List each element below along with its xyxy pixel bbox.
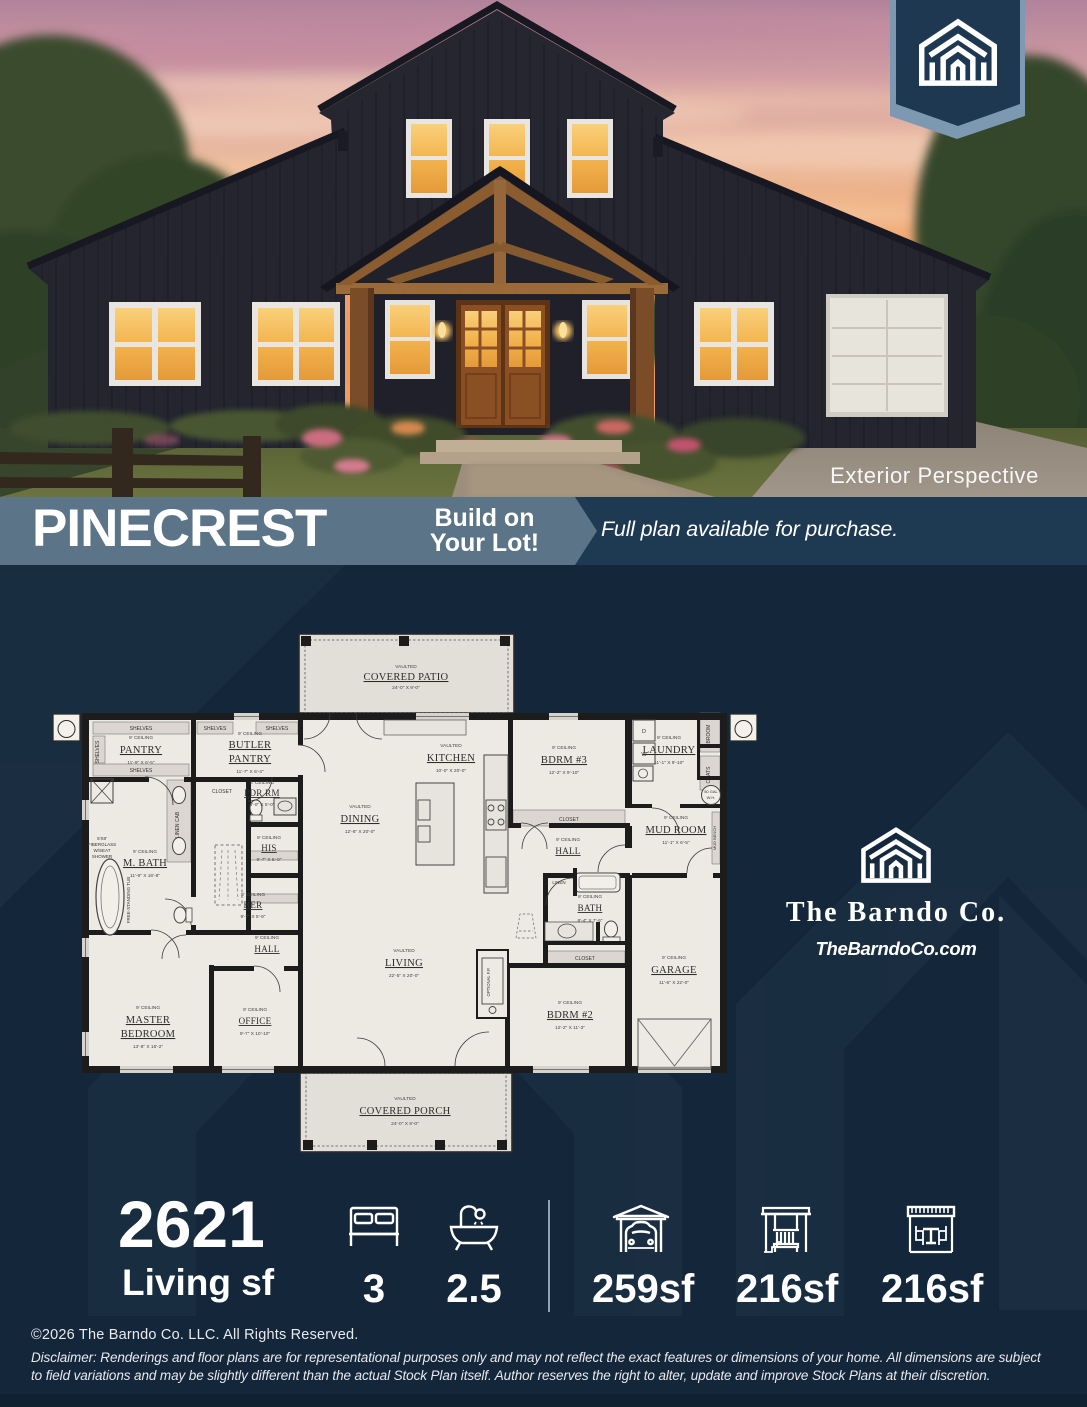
svg-text:COVERED PORCH: COVERED PORCH [359,1106,450,1117]
svg-text:HALL: HALL [555,846,580,856]
svg-text:HER: HER [244,900,263,910]
svg-text:11'-9" X 16'-8": 11'-9" X 16'-8" [130,873,160,879]
svg-text:VAULTED: VAULTED [394,1096,416,1102]
svg-text:6' CEILING: 6' CEILING [250,780,274,786]
svg-text:SHELVES: SHELVES [95,740,101,763]
svg-text:FIBERGLASS: FIBERGLASS [88,842,116,847]
svg-text:VAULTED: VAULTED [440,743,462,749]
svg-text:W.H.: W.H. [707,795,716,800]
svg-text:OFFICE: OFFICE [239,1016,272,1026]
svg-text:GARAGE: GARAGE [651,965,697,976]
svg-text:BDRM #2: BDRM #2 [547,1010,593,1021]
svg-text:MUD BENCH: MUD BENCH [712,826,717,850]
svg-text:9' CEILING: 9' CEILING [241,892,265,898]
svg-text:11'-1" X 6'-5": 11'-1" X 6'-5" [662,840,690,846]
svg-text:11'-7" X 6'-4": 11'-7" X 6'-4" [236,769,264,775]
svg-text:6'-0" X 5'-0": 6'-0" X 5'-0" [250,802,275,808]
svg-text:PANTRY: PANTRY [120,745,162,756]
svg-text:D: D [642,729,646,735]
svg-text:9'-7" X 5'-0": 9'-7" X 5'-0" [257,857,282,863]
svg-text:9' CEILING: 9' CEILING [662,955,686,961]
svg-text:12'-6" X 20'-0": 12'-6" X 20'-0" [345,829,376,835]
svg-text:8'-4" X 7'-6": 8'-4" X 7'-6" [578,918,603,924]
svg-text:9' CEILING: 9' CEILING [133,849,157,855]
svg-text:9' CEILING: 9' CEILING [552,745,576,751]
svg-text:9' CEILING: 9' CEILING [136,1005,160,1011]
svg-text:VAULTED: VAULTED [395,664,417,670]
svg-text:24'-0" X 9'-0": 24'-0" X 9'-0" [392,685,420,691]
svg-text:11'-6" X 22'-0": 11'-6" X 22'-0" [659,980,689,986]
svg-text:LAUNDRY: LAUNDRY [643,745,696,756]
svg-text:HALL: HALL [254,944,279,954]
svg-text:MUD ROOM: MUD ROOM [645,825,706,836]
svg-text:PDR RM: PDR RM [244,788,280,798]
svg-text:SHELVES: SHELVES [130,726,153,732]
svg-text:CLOSET: CLOSET [559,817,579,823]
svg-text:M. BATH: M. BATH [123,858,167,869]
svg-text:9' CEILING: 9' CEILING [664,815,688,821]
svg-text:PANTRY: PANTRY [229,754,271,765]
svg-text:LINEN CAB: LINEN CAB [175,811,181,838]
svg-text:VAULTED: VAULTED [349,804,371,810]
svg-text:22'-5" X 20'-0": 22'-5" X 20'-0" [389,973,420,979]
svg-text:LIVING: LIVING [385,958,423,969]
svg-text:MASTER: MASTER [126,1015,170,1026]
svg-text:12'-2" X 9'-10": 12'-2" X 9'-10" [549,770,580,776]
svg-text:9' CEILING: 9' CEILING [238,731,262,737]
svg-text:OPTIONAL F.P.: OPTIONAL F.P. [486,968,491,997]
svg-text:COATS: COATS [706,766,712,784]
svg-text:SHELVES: SHELVES [204,726,227,732]
svg-text:11'-1" X 9'-10": 11'-1" X 9'-10" [654,760,684,766]
svg-text:Exterior Perspective: Exterior Perspective [830,463,1039,488]
svg-text:9' CEILING: 9' CEILING [657,735,681,741]
svg-text:BEDROOM: BEDROOM [121,1029,176,1040]
svg-text:SHOWER: SHOWER [92,854,113,859]
svg-text:9' CEILING: 9' CEILING [257,835,281,841]
svg-text:W/SEAT: W/SEAT [94,848,111,853]
svg-text:9'-7" X 10'-10": 9'-7" X 10'-10" [240,1031,271,1037]
svg-text:9' CEILING: 9' CEILING [243,1007,267,1013]
svg-text:12'-2" X 11'-3": 12'-2" X 11'-3" [555,1025,585,1031]
svg-text:BDRM #3: BDRM #3 [541,755,587,766]
svg-text:24'-0" X 9'-0": 24'-0" X 9'-0" [391,1121,419,1127]
svg-text:LINEN: LINEN [552,880,565,885]
svg-text:BUTLER: BUTLER [229,740,272,751]
svg-text:9' CEILING: 9' CEILING [129,735,153,741]
svg-text:10'-0" X 20'-0": 10'-0" X 20'-0" [436,768,467,774]
svg-text:SHELVES: SHELVES [130,768,153,774]
svg-text:9' CEILING: 9' CEILING [255,935,279,941]
svg-text:DINING: DINING [340,814,379,825]
svg-text:9' CEILING: 9' CEILING [558,1000,582,1006]
svg-text:KITCHEN: KITCHEN [427,753,475,764]
svg-text:BATH: BATH [578,903,603,913]
svg-text:9' CEILING: 9' CEILING [578,894,602,900]
svg-text:HIS: HIS [261,843,276,853]
svg-text:11'-9" X 6'-5": 11'-9" X 6'-5" [127,760,155,766]
svg-text:BROOM: BROOM [706,725,712,744]
svg-text:CLOSET: CLOSET [212,789,232,795]
svg-text:VAULTED: VAULTED [393,948,415,954]
svg-text:FREE-STANDING TUB: FREE-STANDING TUB [126,877,131,924]
svg-text:SHELVES: SHELVES [266,726,289,732]
svg-text:9'-7" X 5'-9": 9'-7" X 5'-9" [241,914,266,920]
svg-text:50 GAL: 50 GAL [704,789,718,794]
svg-text:5'X8': 5'X8' [97,836,107,841]
svg-text:13'-8" X 15'-2": 13'-8" X 15'-2" [133,1044,164,1050]
svg-text:CLOSET: CLOSET [575,956,595,962]
svg-text:9' CEILING: 9' CEILING [556,837,580,843]
svg-text:COVERED PATIO: COVERED PATIO [364,672,449,683]
